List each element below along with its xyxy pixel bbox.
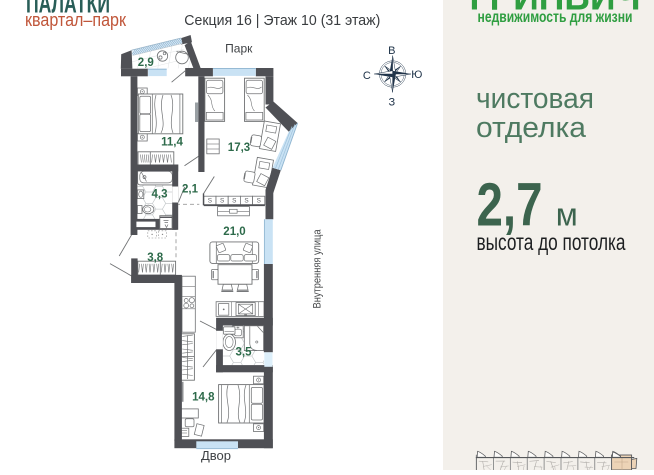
svg-text:отделка: отделка [476, 112, 587, 144]
svg-text:2,9: 2,9 [138, 57, 154, 69]
svg-text:14,8: 14,8 [192, 392, 215, 404]
svg-text:17,3: 17,3 [228, 142, 250, 154]
svg-text:3,8: 3,8 [147, 252, 164, 264]
svg-text:чистовая: чистовая [476, 83, 594, 115]
svg-text:S: S [232, 197, 236, 204]
svg-text:высота до потолка: высота до потолка [477, 229, 626, 255]
svg-text:Секция 16 | Этаж 10 (31 этаж): Секция 16 | Этаж 10 (31 этаж) [184, 13, 380, 29]
svg-text:S: S [208, 197, 212, 204]
svg-text:Внутренняя улица: Внутренняя улица [312, 229, 324, 309]
svg-text:квартал–парк: квартал–парк [25, 9, 127, 30]
svg-text:11,4: 11,4 [161, 137, 183, 149]
svg-text:З: З [388, 97, 395, 109]
svg-text:В: В [388, 45, 395, 57]
svg-text:2,1: 2,1 [182, 184, 199, 196]
svg-text:S: S [257, 197, 261, 204]
svg-text:Ю: Ю [411, 69, 422, 81]
svg-text:С: С [363, 70, 371, 82]
svg-text:S: S [220, 197, 224, 204]
svg-text:S: S [244, 197, 248, 204]
svg-text:Парк: Парк [225, 42, 253, 56]
svg-text:Двор: Двор [201, 448, 231, 463]
svg-text:м: м [556, 196, 578, 232]
svg-text:недвижимость для жизни: недвижимость для жизни [478, 9, 633, 26]
svg-text:3,5: 3,5 [236, 347, 253, 359]
svg-text:4,3: 4,3 [152, 189, 168, 201]
svg-text:21,0: 21,0 [223, 226, 245, 238]
